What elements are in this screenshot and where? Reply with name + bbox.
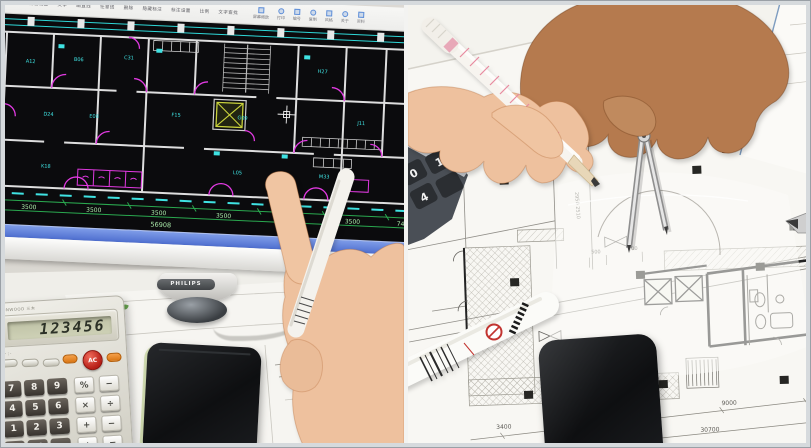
photo: 默认方式图层设置文字画直线任意线删除隐藏标注标注设置比例文字查找 屏幕缩放打印编…: [5, 5, 806, 443]
left-scene: 默认方式图层设置文字画直线任意线删除隐藏标注标注设置比例文字查找 屏幕缩放打印编…: [5, 5, 404, 443]
hands-overlay: [408, 5, 806, 443]
thumb: [280, 339, 322, 391]
right-scene: 3400 9000 30700 500 200 2950 2510: [408, 5, 806, 443]
photo-frame: 默认方式图层设置文字画直线任意线删除隐藏标注标注设置比例文字查找 屏幕缩放打印编…: [0, 0, 811, 448]
pointing-hand-group: [5, 5, 404, 443]
